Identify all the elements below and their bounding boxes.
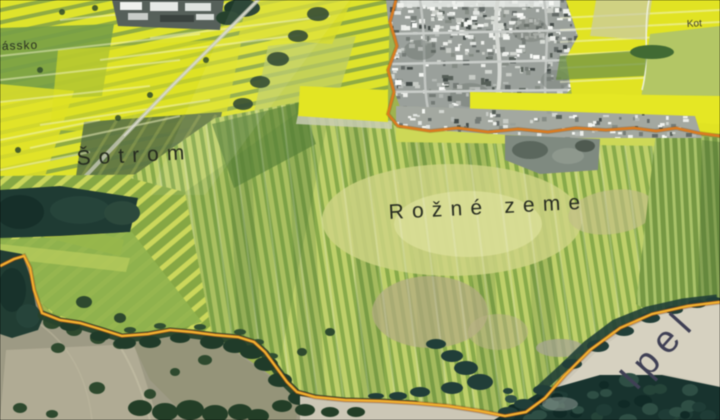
svg-text:Kot: Kot xyxy=(687,18,703,30)
svg-text:ássko: ássko xyxy=(2,38,39,53)
